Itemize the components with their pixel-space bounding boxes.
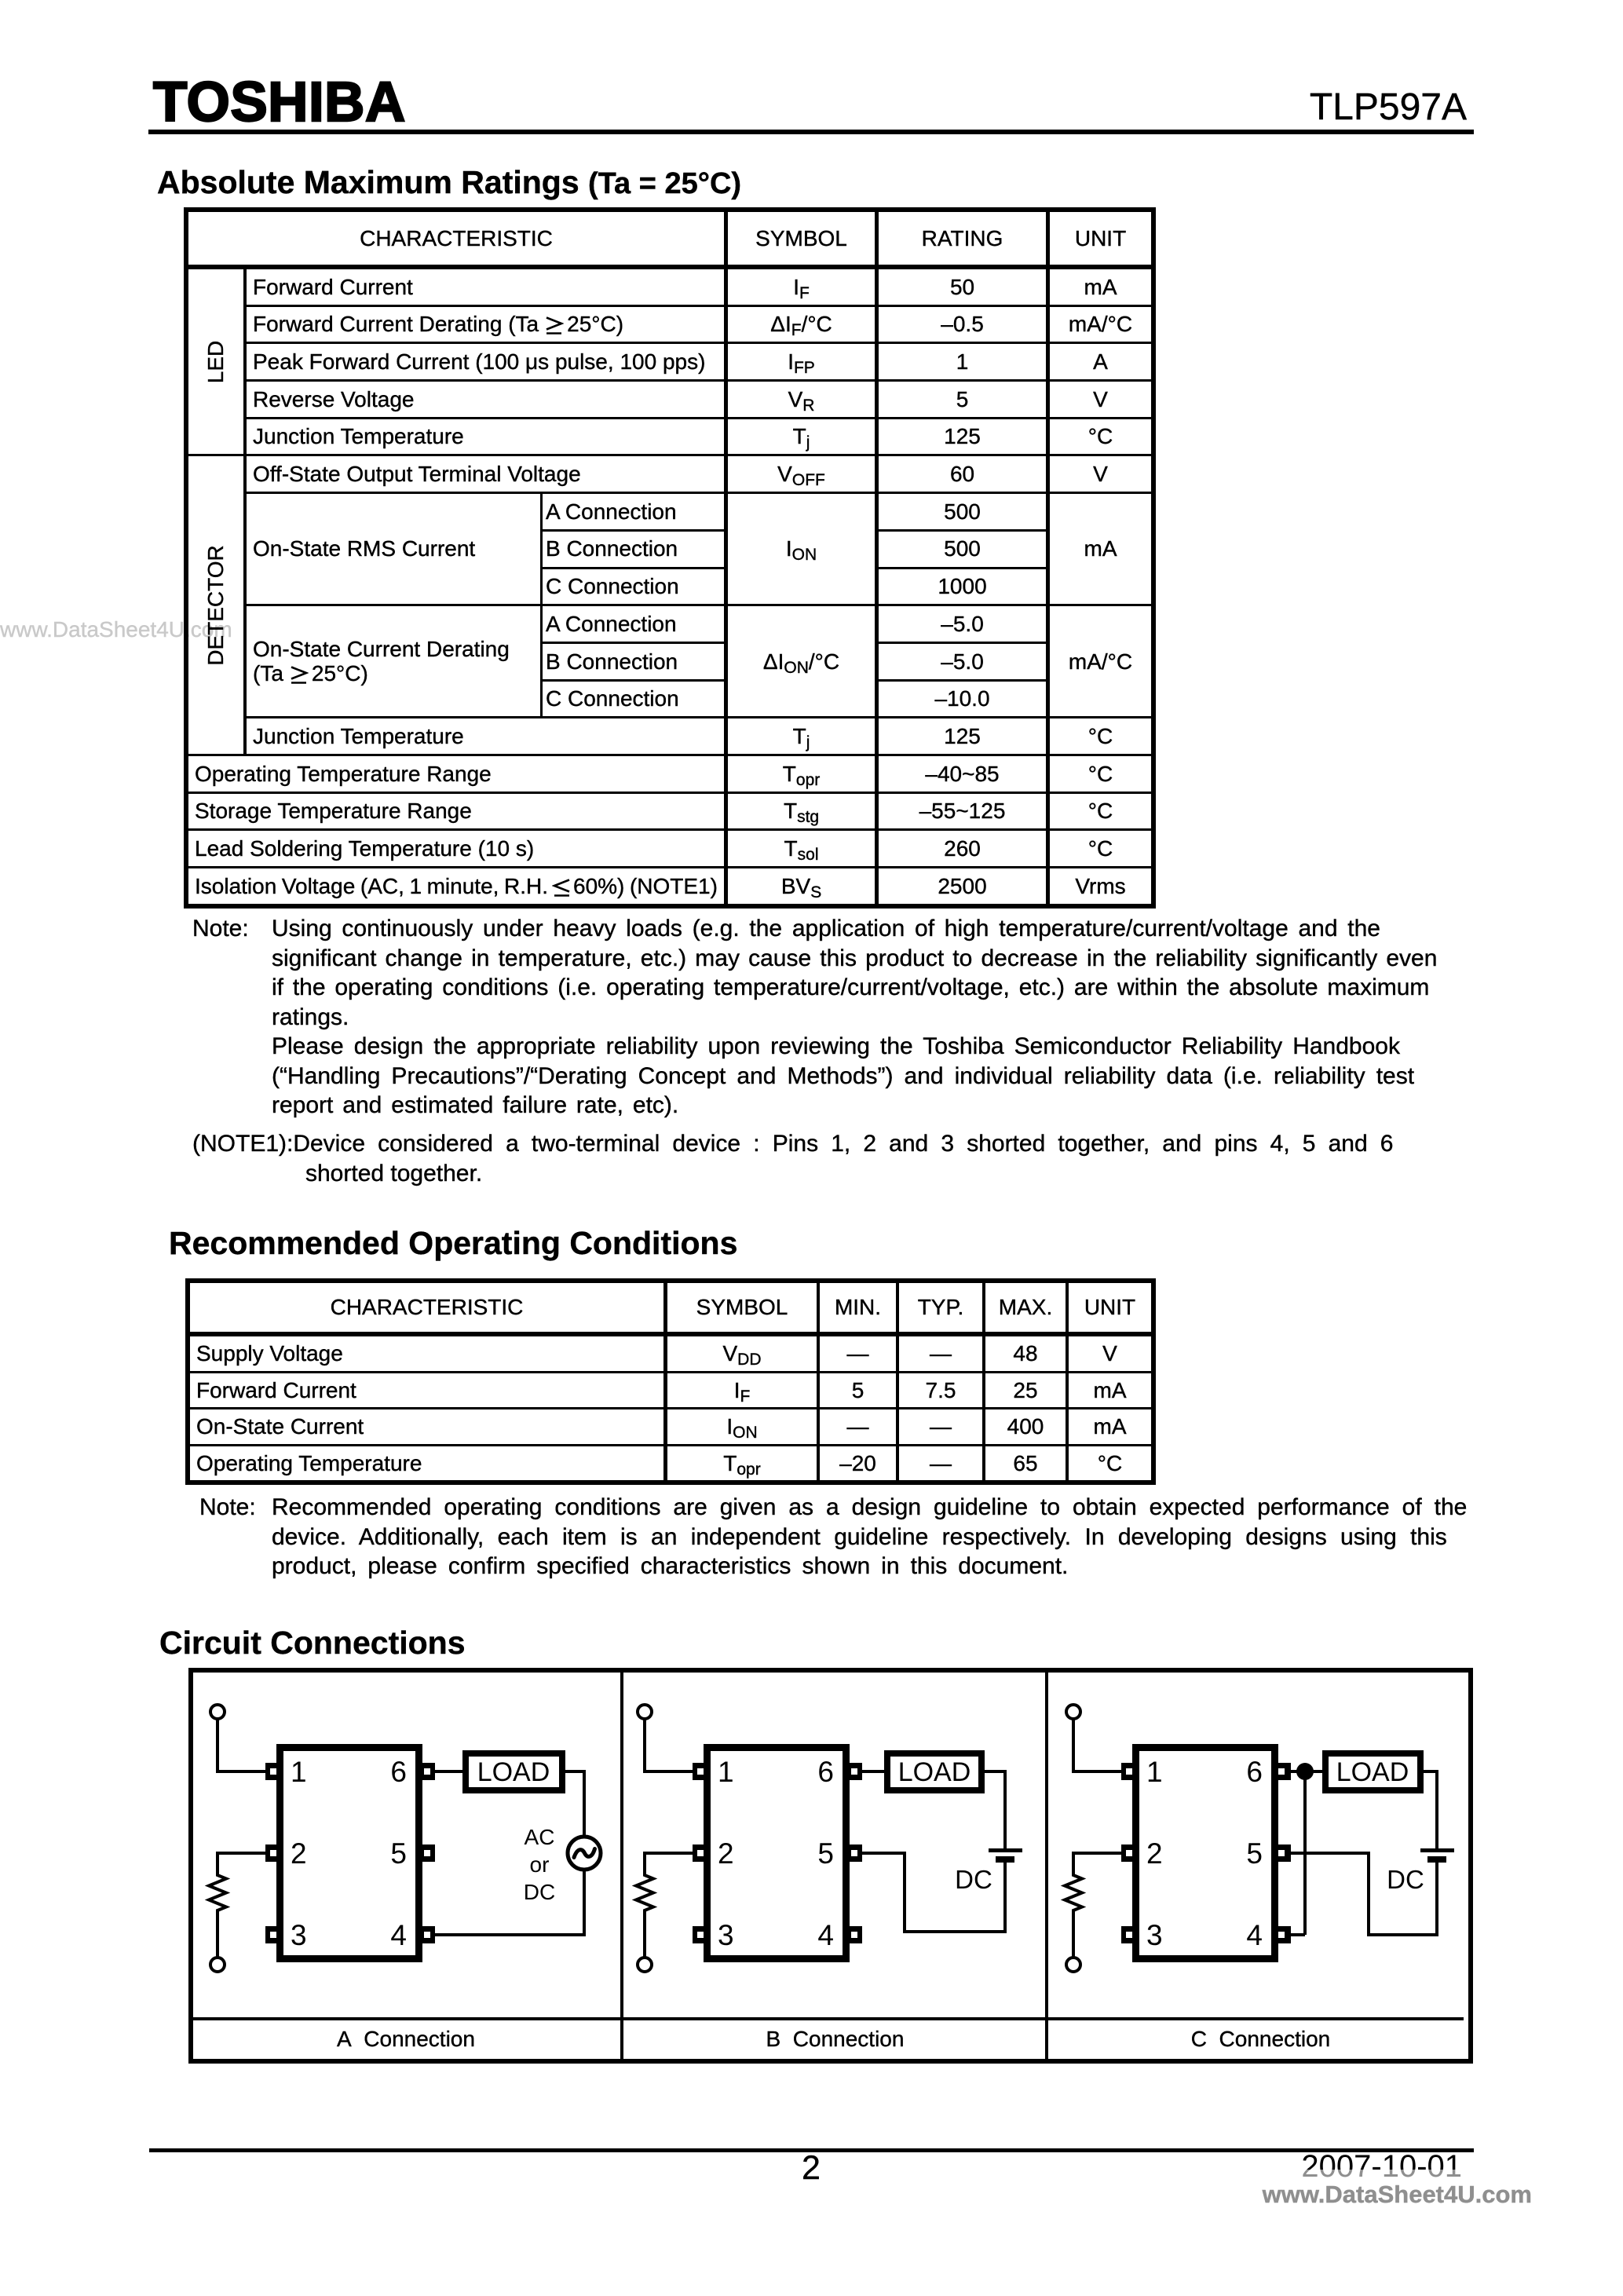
svg-text:1: 1 — [291, 1756, 307, 1788]
svg-text:4: 4 — [817, 1919, 834, 1951]
svg-text:2: 2 — [718, 1837, 734, 1870]
svg-text:2: 2 — [291, 1837, 307, 1870]
svg-text:1: 1 — [718, 1756, 734, 1788]
svg-text:5: 5 — [390, 1837, 407, 1870]
svg-text:LOAD: LOAD — [898, 1757, 971, 1787]
svg-text:5: 5 — [817, 1837, 834, 1870]
svg-text:AC: AC — [525, 1825, 555, 1849]
svg-text:6: 6 — [817, 1756, 834, 1788]
svg-text:1: 1 — [1146, 1756, 1163, 1788]
svg-text:DC: DC — [1387, 1865, 1424, 1894]
svg-text:3: 3 — [718, 1919, 734, 1951]
svg-text:or: or — [530, 1852, 550, 1877]
svg-text:2: 2 — [1146, 1837, 1163, 1870]
svg-text:3: 3 — [1146, 1919, 1163, 1951]
svg-text:LOAD: LOAD — [477, 1757, 550, 1787]
svg-text:6: 6 — [1246, 1756, 1263, 1788]
svg-text:DC: DC — [524, 1880, 555, 1904]
svg-text:LOAD: LOAD — [1336, 1757, 1409, 1787]
svg-text:5: 5 — [1246, 1837, 1263, 1870]
svg-text:4: 4 — [1246, 1919, 1263, 1951]
svg-text:4: 4 — [390, 1919, 407, 1951]
svg-text:3: 3 — [291, 1919, 307, 1951]
svg-text:6: 6 — [390, 1756, 407, 1788]
svg-text:DC: DC — [955, 1865, 992, 1894]
